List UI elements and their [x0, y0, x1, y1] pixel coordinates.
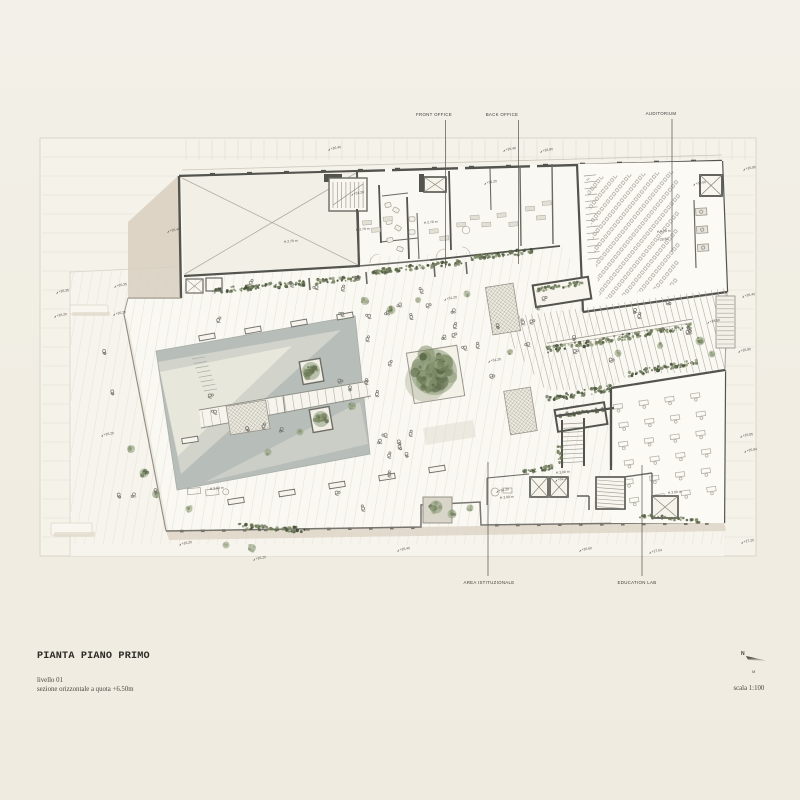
svg-text:EDUCATION LAB: EDUCATION LAB [618, 580, 657, 585]
svg-text:scala 1:100: scala 1:100 [734, 685, 765, 692]
svg-text:N: N [741, 651, 745, 657]
svg-text:PIANTA PIANO PRIMO: PIANTA PIANO PRIMO [37, 651, 150, 662]
svg-text:AUDITORIUM: AUDITORIUM [646, 111, 677, 116]
svg-text:M: M [752, 669, 755, 674]
svg-text:FRONT OFFICE: FRONT OFFICE [416, 112, 452, 117]
svg-text:AREA ISTITUZIONALE: AREA ISTITUZIONALE [463, 580, 514, 585]
svg-text:BACK OFFICE: BACK OFFICE [486, 112, 519, 117]
svg-text:sezione orizzontale a quota +6: sezione orizzontale a quota +6.50m [37, 686, 134, 693]
svg-text:livello 01: livello 01 [37, 677, 63, 684]
